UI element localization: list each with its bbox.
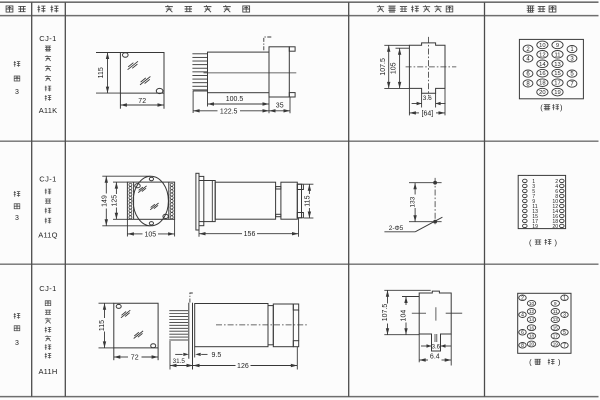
svg-text:6.4: 6.4 <box>430 354 440 361</box>
svg-text:3.6: 3.6 <box>432 344 441 350</box>
svg-text:3: 3 <box>15 340 19 347</box>
svg-text:14: 14 <box>539 62 546 68</box>
svg-text:107.5: 107.5 <box>380 58 387 76</box>
svg-text:31.5: 31.5 <box>173 358 186 365</box>
svg-text:115: 115 <box>98 67 105 78</box>
svg-text:9: 9 <box>556 43 559 49</box>
svg-text:14: 14 <box>529 317 535 322</box>
svg-text:3: 3 <box>15 215 19 222</box>
svg-text:115: 115 <box>99 320 106 331</box>
svg-text:126: 126 <box>237 363 249 370</box>
svg-text:125: 125 <box>111 195 118 207</box>
svg-text:104: 104 <box>401 310 408 322</box>
svg-text:11: 11 <box>553 309 558 314</box>
svg-text:): ) <box>560 103 563 112</box>
svg-text:11: 11 <box>554 52 560 58</box>
svg-text:12: 12 <box>539 52 545 58</box>
svg-text:18: 18 <box>529 334 535 339</box>
svg-text:2: 2 <box>521 296 524 302</box>
svg-text:13: 13 <box>554 62 560 68</box>
svg-text:17: 17 <box>554 81 560 87</box>
svg-text:17: 17 <box>553 334 559 339</box>
svg-text:35: 35 <box>276 103 284 110</box>
svg-text:149: 149 <box>101 195 108 207</box>
svg-text:100.5: 100.5 <box>226 96 244 103</box>
svg-text:10: 10 <box>539 43 545 49</box>
svg-text:CJ-1: CJ-1 <box>39 34 56 43</box>
svg-text:CJ-1: CJ-1 <box>39 284 56 293</box>
svg-text:3: 3 <box>563 312 566 318</box>
svg-text:105: 105 <box>391 62 398 74</box>
svg-text:6: 6 <box>521 330 524 336</box>
svg-text:19: 19 <box>553 342 559 347</box>
svg-text:CJ-1: CJ-1 <box>39 175 56 184</box>
svg-text:A11H: A11H <box>38 367 57 376</box>
svg-text:156: 156 <box>244 231 256 238</box>
svg-text:122.5: 122.5 <box>220 108 238 115</box>
svg-text:72: 72 <box>138 98 146 105</box>
svg-text:15: 15 <box>554 71 560 77</box>
svg-text:13: 13 <box>553 317 559 322</box>
svg-text:16: 16 <box>529 325 535 330</box>
svg-text:18: 18 <box>539 81 545 87</box>
svg-text:8: 8 <box>521 343 524 349</box>
svg-text:107.5: 107.5 <box>382 304 389 322</box>
svg-text:10: 10 <box>529 301 535 306</box>
svg-text:7: 7 <box>563 343 566 349</box>
svg-text:72: 72 <box>131 354 139 361</box>
svg-text:9.5: 9.5 <box>212 352 222 359</box>
svg-text:A11Q: A11Q <box>38 231 57 240</box>
svg-text:19: 19 <box>554 90 560 96</box>
svg-text:9: 9 <box>554 301 557 306</box>
svg-text:12: 12 <box>529 309 535 314</box>
svg-text:15: 15 <box>553 325 559 330</box>
svg-text:3.6: 3.6 <box>423 95 432 102</box>
svg-text:(: ( <box>529 358 532 367</box>
svg-text:16: 16 <box>539 71 545 77</box>
svg-text:(: ( <box>529 238 532 247</box>
svg-text:1: 1 <box>563 296 566 302</box>
svg-text:3: 3 <box>15 89 19 96</box>
svg-text:105: 105 <box>144 231 156 238</box>
svg-text:19: 19 <box>532 224 538 230</box>
svg-text:): ) <box>555 238 558 247</box>
svg-text:5: 5 <box>563 330 566 336</box>
svg-text:A11K: A11K <box>39 106 58 115</box>
svg-text:20: 20 <box>552 224 558 230</box>
svg-text:115: 115 <box>304 195 311 206</box>
svg-text:133: 133 <box>410 196 417 207</box>
svg-text:20: 20 <box>539 90 545 96</box>
svg-text:2-Φ5: 2-Φ5 <box>389 225 404 232</box>
svg-text:[64]: [64] <box>422 110 434 117</box>
svg-text:): ) <box>558 358 561 367</box>
svg-text:(: ( <box>540 103 543 112</box>
svg-text:4: 4 <box>521 312 524 318</box>
svg-text:20: 20 <box>529 342 535 347</box>
